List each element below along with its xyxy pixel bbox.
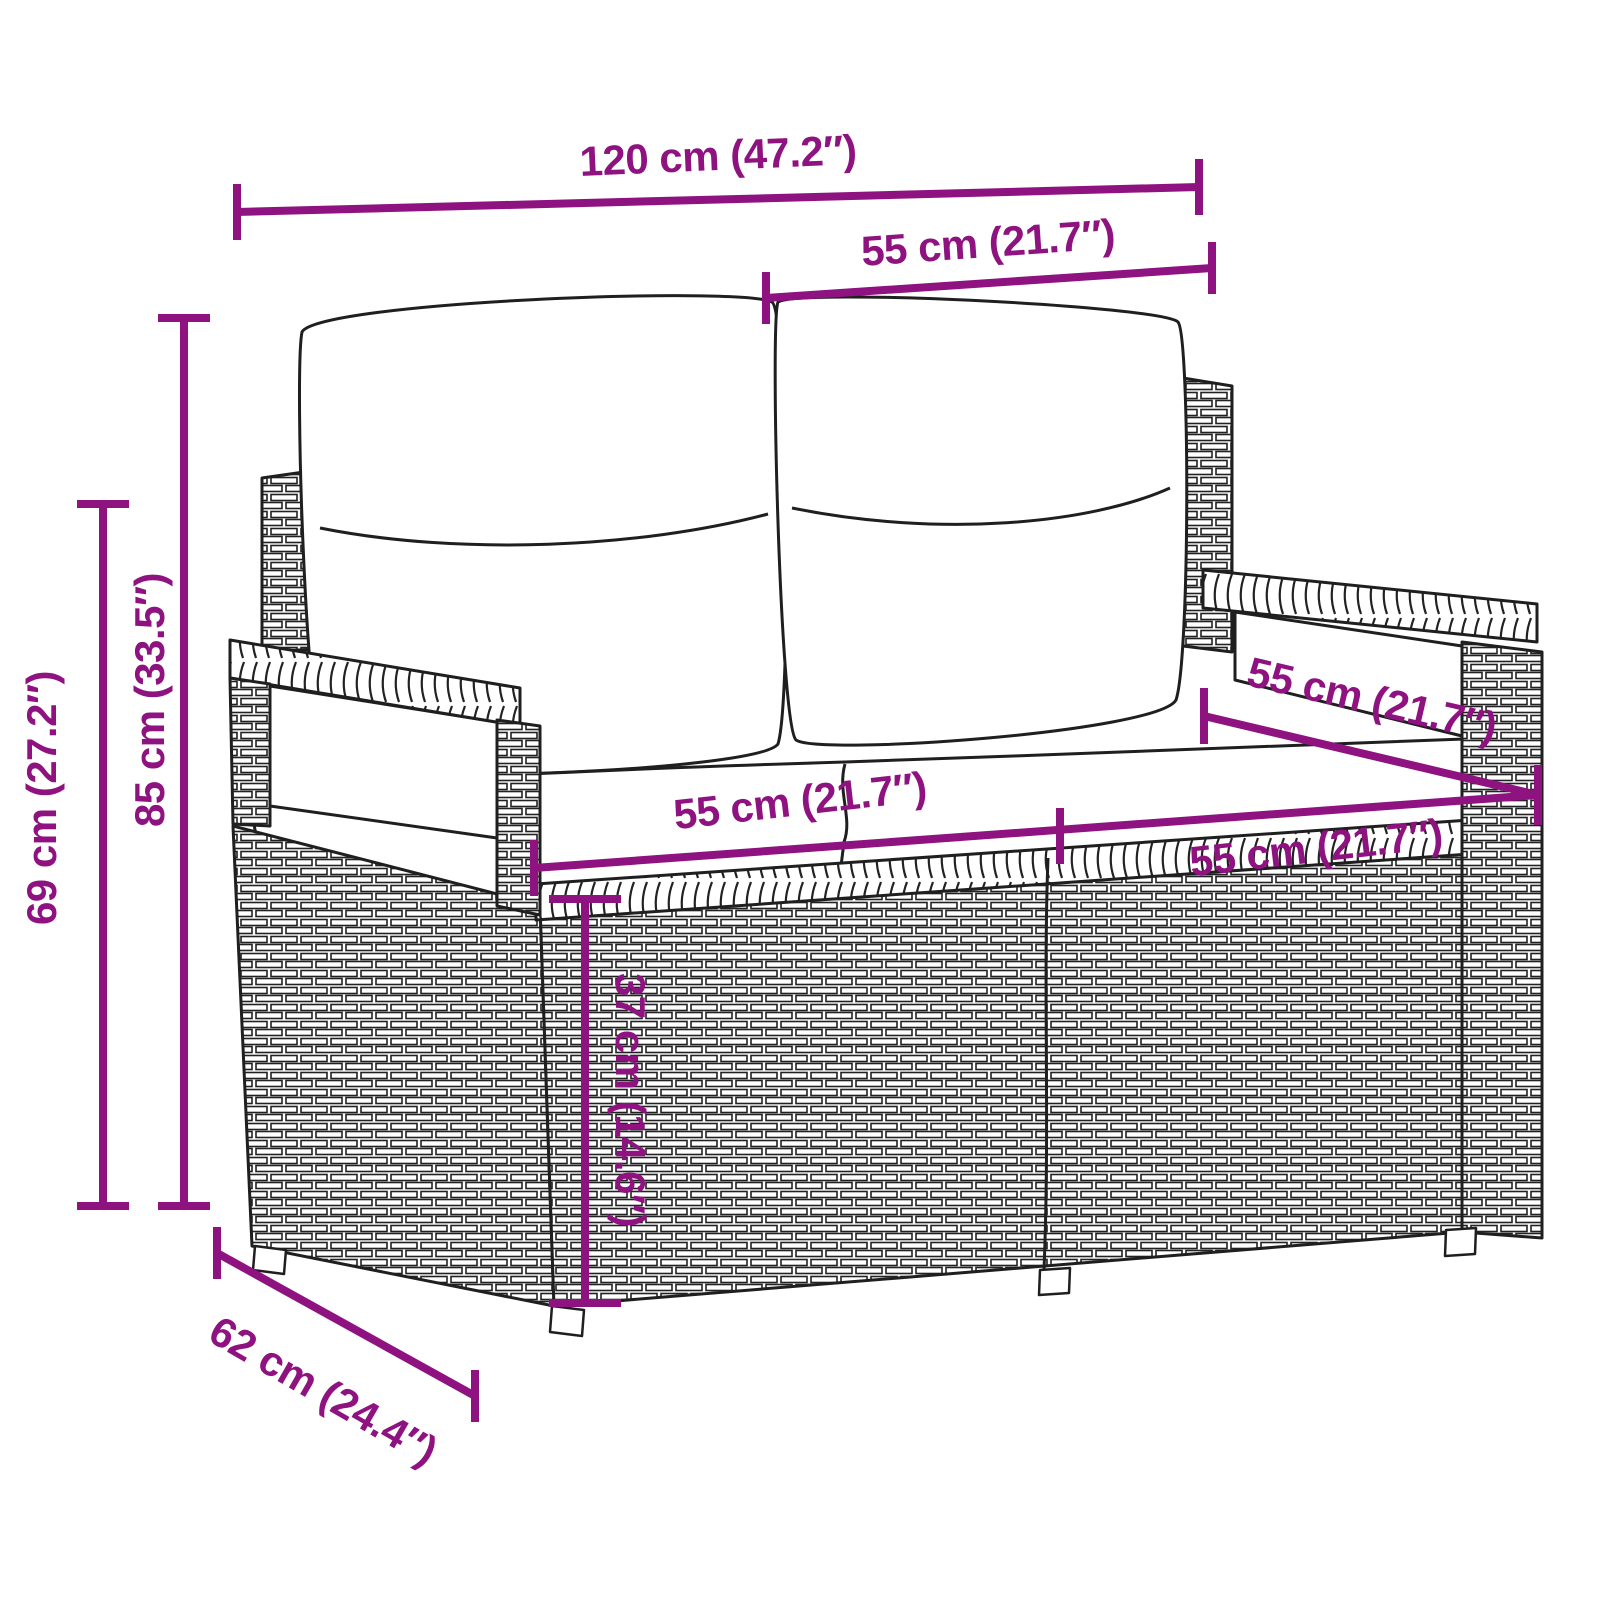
dim-seat-height-label: 37 cm (14.6″): [606, 973, 654, 1227]
foot: [1445, 1228, 1476, 1256]
foot: [550, 1306, 584, 1336]
foot: [253, 1246, 286, 1274]
dim-armrest-height-label: 69 cm (27.2″): [18, 671, 66, 925]
base: [233, 820, 1470, 1306]
left-arm-front-strip: [230, 678, 270, 826]
back-cushion-right: [775, 297, 1187, 745]
dim-armrest-height-line: [77, 504, 129, 1206]
dim-overall-height-label: 85 cm (33.5″): [126, 573, 174, 827]
sofa-illustration: [230, 296, 1542, 1336]
product-dimension-diagram: 120 cm (47.2″) 55 cm (21.7″) 85 cm (33.5…: [0, 0, 1600, 1600]
foot: [1039, 1268, 1070, 1295]
